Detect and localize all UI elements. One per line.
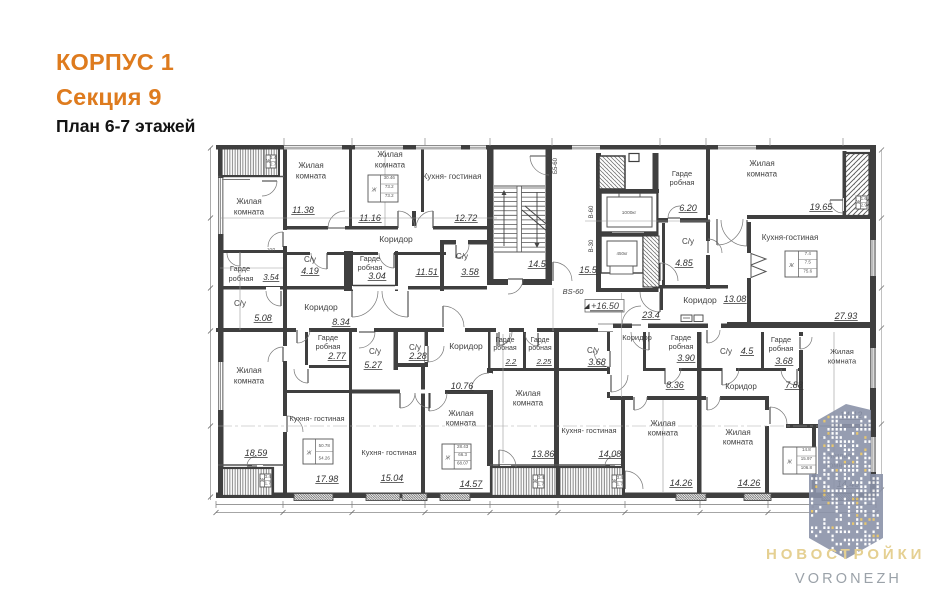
svg-text:Коридор: Коридор [304,302,338,312]
svg-text:4.85: 4.85 [675,258,694,268]
svg-text:14.8: 14.8 [802,447,811,452]
svg-text:1000кг: 1000кг [622,210,637,216]
svg-text:Кухня- гостиная: Кухня- гостиная [361,448,416,457]
svg-text:15.04: 15.04 [381,473,404,483]
svg-text:1.7: 1.7 [617,482,624,487]
svg-text:Коридор: Коридор [622,333,652,342]
svg-text:1.7: 1.7 [265,481,272,486]
svg-text:106.8: 106.8 [801,465,813,470]
svg-text:11.16: 11.16 [359,213,381,223]
svg-text:BS-60: BS-60 [563,287,585,296]
svg-text:8.36: 8.36 [666,380,684,390]
svg-text:комната: комната [296,172,327,181]
svg-text:2.25: 2.25 [536,357,552,366]
svg-text:50.78: 50.78 [319,443,331,448]
svg-text:2.7: 2.7 [270,162,277,167]
svg-text:Жилая: Жилая [298,161,323,170]
svg-text:Кухня- гостиная: Кухня- гостиная [289,414,344,423]
svg-text:3.4: 3.4 [265,474,272,479]
svg-text:Ж: Ж [786,460,792,466]
svg-text:11.51: 11.51 [416,267,438,277]
svg-text:Жилая: Жилая [650,419,675,428]
svg-text:15.97: 15.97 [801,456,813,461]
svg-text:12.72: 12.72 [455,213,478,223]
svg-text:66.3: 66.3 [458,452,467,457]
svg-text:Жилая: Жилая [236,366,261,375]
svg-text:4.5: 4.5 [741,346,755,356]
svg-text:3.4: 3.4 [538,475,545,480]
svg-text:2.2: 2.2 [505,357,517,366]
svg-text:С/у: С/у [587,346,599,355]
svg-text:13.86: 13.86 [532,449,555,459]
svg-text:Жилая: Жилая [830,347,854,356]
svg-text:4.19: 4.19 [301,266,319,276]
svg-text:Гарде: Гарде [495,337,514,344]
svg-text:робная: робная [228,274,253,283]
svg-text:комната: комната [513,399,544,408]
svg-text:комната: комната [375,161,406,170]
svg-text:3.68: 3.68 [588,357,606,367]
svg-text:Кухня- гостиная: Кухня- гостиная [423,172,482,181]
svg-text:14.26: 14.26 [670,478,693,488]
svg-text:Кухня-гостиная: Кухня-гостиная [762,233,819,242]
svg-text:73.2: 73.2 [385,184,394,189]
svg-text:Гарде: Гарде [671,333,691,342]
svg-text:10Л: 10Л [267,247,275,252]
svg-text:73.2: 73.2 [385,193,394,198]
svg-text:Б5-60: Б5-60 [553,157,559,174]
svg-text:комната: комната [648,429,679,438]
svg-text:Ж: Ж [445,456,451,462]
svg-text:Жилая: Жилая [515,389,540,398]
svg-text:С/у: С/у [369,347,381,356]
svg-text:робная: робная [768,344,793,353]
svg-text:Ж: Ж [265,159,271,165]
svg-text:Жилая: Жилая [448,409,473,418]
svg-text:7.5: 7.5 [805,260,812,265]
svg-text:5.08: 5.08 [254,313,272,323]
svg-text:Жилая: Жилая [236,197,261,206]
svg-text:2.77: 2.77 [327,351,347,361]
svg-text:15.5: 15.5 [579,265,598,275]
svg-text:С/у: С/у [720,347,732,356]
svg-text:робная: робная [669,178,694,187]
svg-text:3.68: 3.68 [775,356,793,366]
svg-text:19.65: 19.65 [810,202,834,212]
svg-text:Гарде: Гарде [318,333,338,342]
svg-text:6.20: 6.20 [679,203,697,213]
svg-text:+16.50: +16.50 [591,301,619,311]
svg-text:3.04: 3.04 [368,271,386,281]
svg-text:7.4: 7.4 [805,251,812,256]
svg-text:Гарде: Гарде [530,337,549,344]
svg-text:30.46: 30.46 [384,175,396,180]
svg-text:комната: комната [446,419,477,428]
svg-text:54.26: 54.26 [319,456,331,461]
svg-text:75.6: 75.6 [803,268,812,273]
svg-text:Коридор: Коридор [725,382,757,391]
svg-text:Жилая: Жилая [749,159,774,168]
svg-text:робная: робная [315,342,340,351]
svg-text:3.90: 3.90 [677,353,695,363]
svg-text:Коридор: Коридор [379,234,413,244]
svg-text:Ж: Ж [788,263,794,269]
svg-text:робная: робная [668,342,693,351]
svg-text:13.08: 13.08 [724,294,747,304]
svg-text:14.26: 14.26 [738,478,761,488]
svg-text:комната: комната [747,170,778,179]
svg-text:11.38: 11.38 [292,205,314,215]
svg-text:комната: комната [234,377,265,386]
svg-text:14.08: 14.08 [599,449,622,459]
svg-text:Гарде: Гарде [771,335,791,344]
svg-text:3.58: 3.58 [461,267,479,277]
svg-text:450кг: 450кг [616,251,627,256]
svg-text:В-30: В-30 [589,239,595,252]
svg-text:Гарде: Гарде [360,254,380,263]
svg-text:68.07: 68.07 [457,461,469,466]
svg-text:Коридор: Коридор [449,341,483,351]
svg-text:3.54: 3.54 [263,273,279,282]
svg-text:Ж: Ж [532,479,538,485]
svg-text:Гарде: Гарде [230,264,250,273]
svg-text:Ж: Ж [306,451,312,457]
svg-text:комната: комната [828,357,857,366]
svg-text:С/у: С/у [456,252,468,261]
svg-text:Коридор: Коридор [683,295,717,305]
svg-text:17.98: 17.98 [316,474,339,484]
svg-text:18.59: 18.59 [245,448,268,458]
svg-text:Жилая: Жилая [725,428,750,437]
svg-text:1.6: 1.6 [861,196,868,201]
svg-text:5.27: 5.27 [364,360,383,370]
svg-text:робная: робная [528,344,552,352]
svg-text:С/у: С/у [234,299,246,308]
svg-text:1.7: 1.7 [538,482,545,487]
svg-text:2.28: 2.28 [408,351,427,361]
svg-text:23.4: 23.4 [641,310,660,320]
svg-text:С/у: С/у [304,255,316,264]
svg-text:Ж: Ж [259,478,265,484]
svg-text:Гарде: Гарде [672,169,692,178]
svg-text:10.76: 10.76 [451,381,474,391]
svg-text:2.9: 2.9 [861,203,868,208]
svg-text:7.88: 7.88 [785,380,803,390]
svg-text:27.93: 27.93 [834,311,858,321]
svg-text:3.4: 3.4 [617,475,624,480]
svg-text:робная: робная [493,344,517,352]
svg-text:28.43: 28.43 [457,444,469,449]
svg-text:Кухня- гостиная: Кухня- гостиная [561,426,616,435]
svg-text:С/у: С/у [682,237,694,246]
svg-text:14.57: 14.57 [460,479,484,489]
svg-text:8.34: 8.34 [332,317,350,327]
svg-text:комната: комната [234,208,265,217]
svg-text:Ж: Ж [611,479,617,485]
svg-text:Жилая: Жилая [377,150,402,159]
svg-text:14.5: 14.5 [528,259,547,269]
svg-text:Ж: Ж [855,200,861,206]
svg-text:Ж: Ж [371,188,377,194]
svg-text:В-60: В-60 [589,205,595,218]
svg-text:1.4: 1.4 [270,155,277,160]
svg-text:комната: комната [723,438,754,447]
